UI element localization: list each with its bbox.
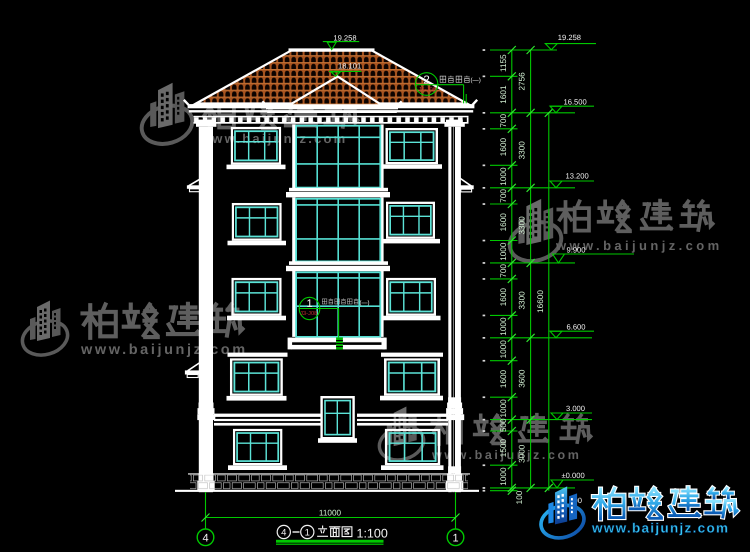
svg-text:700: 700 [499,114,508,128]
svg-text:(—): (—) [471,77,481,84]
svg-text:3300: 3300 [518,141,527,160]
svg-text:1000: 1000 [499,317,508,336]
svg-text:1: 1 [305,528,310,539]
svg-text:19.258: 19.258 [558,33,581,42]
svg-text:1600: 1600 [499,213,508,232]
svg-text:1600: 1600 [499,288,508,307]
svg-text:4: 4 [202,532,208,544]
svg-text:3300: 3300 [518,216,527,235]
svg-text:1: 1 [452,532,458,544]
svg-text:1600: 1600 [499,369,508,388]
svg-text:J3-J08: J3-J08 [300,310,317,317]
svg-text:1500: 1500 [499,439,508,458]
svg-text:11000: 11000 [319,509,342,518]
svg-text:9.900: 9.900 [567,245,586,254]
svg-text:1:100: 1:100 [357,526,388,540]
svg-text:1000: 1000 [499,399,508,418]
svg-text:1000: 1000 [499,167,508,186]
svg-text:1600: 1600 [499,138,508,157]
svg-text:1601: 1601 [499,85,508,104]
svg-text:3000: 3000 [518,444,527,463]
svg-text:18.101: 18.101 [338,62,361,71]
svg-text:16.500: 16.500 [564,97,587,106]
svg-text:3600: 3600 [518,369,527,388]
svg-text:1000: 1000 [499,467,508,486]
svg-text:±0.000: ±0.000 [562,471,585,480]
svg-text:3300: 3300 [518,291,527,310]
svg-text:700: 700 [499,189,508,203]
svg-text:13.200: 13.200 [566,171,589,180]
svg-text:1000: 1000 [499,340,508,359]
svg-text:(—): (—) [360,299,370,306]
svg-text:J5-J06: J5-J06 [419,86,436,93]
svg-text:1000: 1000 [499,242,508,261]
svg-text:100: 100 [515,490,524,504]
svg-text:700: 700 [499,264,508,278]
svg-text:2756: 2756 [518,72,527,91]
svg-text:4: 4 [281,528,286,539]
svg-text:www.baijunjz.com: www.baijunjz.com [199,131,347,146]
svg-text:500: 500 [499,418,508,432]
svg-text:16600: 16600 [536,290,545,313]
svg-text:19.258: 19.258 [333,33,356,42]
svg-text:1155: 1155 [499,54,508,72]
svg-text:www.baijunjz.com: www.baijunjz.com [591,521,729,536]
svg-text:6.600: 6.600 [567,322,586,331]
svg-text:3.000: 3.000 [566,404,585,413]
svg-text:www.baijunjz.com: www.baijunjz.com [80,342,248,358]
